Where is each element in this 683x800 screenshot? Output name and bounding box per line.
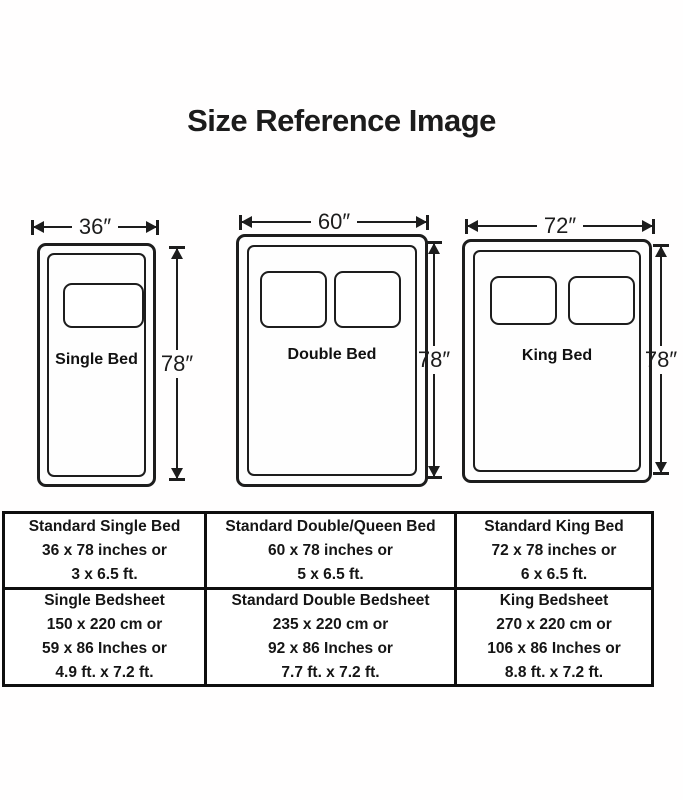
cell-line: King Bedsheet [500,589,609,613]
single-height-label: 78″ [161,350,193,378]
table-cell-single-bedsheet: Single Bedsheet 150 x 220 cm or 59 x 86 … [5,590,207,684]
up-arrowhead [433,244,435,346]
down-arrowhead [176,378,178,479]
size-reference-page: Size Reference Image 36″ Single Bed 78″ [0,0,683,800]
cell-line: Single Bedsheet [44,589,165,613]
cell-line: 235 x 220 cm or [273,613,388,637]
page-title: Size Reference Image [0,103,683,139]
left-arrowhead [34,226,72,228]
cell-line: Standard Double Bedsheet [231,589,429,613]
cell-line: 6 x 6.5 ft. [521,563,587,587]
pillow [63,283,144,328]
single-bed-outline: Single Bed [37,243,156,487]
left-arrowhead [468,225,537,227]
double-width-label: 60″ [311,211,357,233]
double-bed-outline: Double Bed [236,234,428,487]
table-cell-king-bedsheet: King Bedsheet 270 x 220 cm or 106 x 86 I… [457,590,651,684]
up-arrowhead [660,247,662,346]
cell-line: Standard King Bed [484,515,624,539]
single-bed-name: Single Bed [49,351,144,369]
cell-line: 150 x 220 cm or [47,613,162,637]
double-bed-name: Double Bed [249,346,415,364]
single-width-arrow: 36″ [31,214,159,240]
double-height-label: 78″ [418,346,450,374]
cell-line: 92 x 86 Inches or [268,637,393,661]
king-height-arrow: 78″ [643,244,679,475]
king-bed-name: King Bed [475,347,639,365]
cell-line: 7.7 ft. x 7.2 ft. [281,661,379,685]
king-width-arrow: 72″ [465,213,655,239]
table-cell-standard-double-bed: Standard Double/Queen Bed 60 x 78 inches… [207,514,457,590]
right-arrowhead [583,225,652,227]
cell-line: 60 x 78 inches or [268,539,393,563]
pillow [490,276,557,325]
double-width-arrow: 60″ [239,209,429,235]
cell-line: 4.9 ft. x 7.2 ft. [55,661,153,685]
double-height-arrow: 78″ [416,241,452,479]
king-width-label: 72″ [537,215,583,237]
cell-line: 5 x 6.5 ft. [297,563,363,587]
table-cell-standard-king-bed: Standard King Bed 72 x 78 inches or 6 x … [457,514,651,590]
cell-line: 36 x 78 inches or [42,539,167,563]
right-arrowhead [357,221,426,223]
down-arrowhead [433,374,435,476]
cell-line: 3 x 6.5 ft. [71,563,137,587]
size-table: Standard Single Bed 36 x 78 inches or 3 … [2,511,654,687]
cell-line: 8.8 ft. x 7.2 ft. [505,661,603,685]
cell-line: 270 x 220 cm or [496,613,611,637]
pillow [568,276,635,325]
cell-line: Standard Single Bed [29,515,181,539]
single-mattress-outline: Single Bed [47,253,146,477]
king-mattress-outline: King Bed [473,250,641,472]
double-mattress-outline: Double Bed [247,245,417,476]
single-width-label: 36″ [72,216,118,238]
pillow [334,271,401,328]
king-bed-outline: King Bed [462,239,652,483]
cell-line: Standard Double/Queen Bed [225,515,435,539]
cell-line: 106 x 86 Inches or [487,637,621,661]
single-height-arrow: 78″ [159,246,195,481]
left-arrowhead [242,221,311,223]
cell-line: 72 x 78 inches or [492,539,617,563]
king-height-label: 78″ [645,346,677,374]
cell-line: 59 x 86 Inches or [42,637,167,661]
table-cell-double-bedsheet: Standard Double Bedsheet 235 x 220 cm or… [207,590,457,684]
pillow [260,271,327,328]
table-cell-standard-single-bed: Standard Single Bed 36 x 78 inches or 3 … [5,514,207,590]
up-arrowhead [176,249,178,350]
right-arrowhead [118,226,156,228]
down-arrowhead [660,374,662,473]
